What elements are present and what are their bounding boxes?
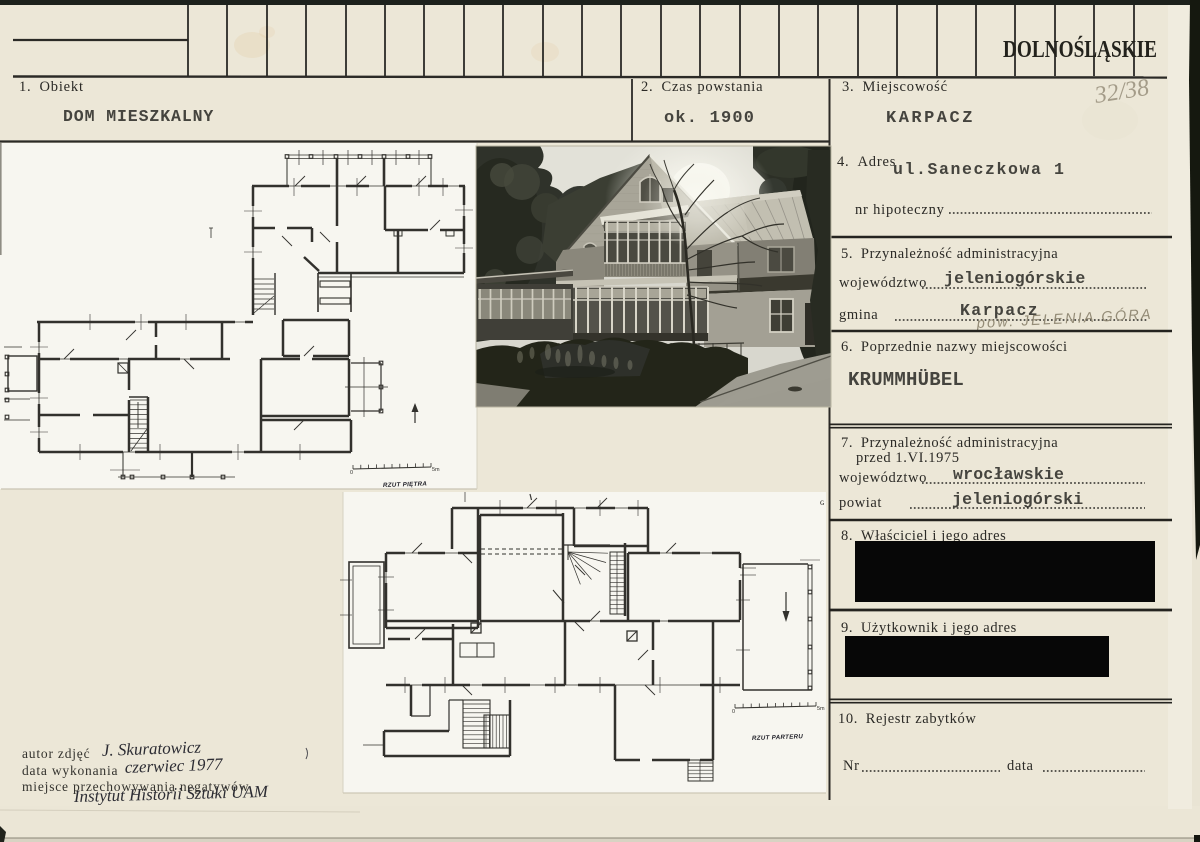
svg-text:DOLNOŚLĄSKIE: DOLNOŚLĄSKIE [1003,35,1157,63]
svg-text:data wykonania: data wykonania [22,763,118,778]
svg-text:wrocławskie: wrocławskie [953,465,1064,484]
svg-text:6. Poprzednie nazwy miejscowoś: 6. Poprzednie nazwy miejscowości [841,339,1068,355]
svg-text:jeleniogórskie: jeleniogórskie [944,269,1085,288]
svg-text:2. Czas powstania: 2. Czas powstania [641,79,763,95]
svg-text:gmina: gmina [839,307,878,323]
svg-text:data: data [1007,758,1034,774]
svg-text:DOM MIESZKALNY: DOM MIESZKALNY [63,107,214,126]
svg-text:województwo: województwo [839,275,927,291]
svg-text:województwo: województwo [839,470,927,486]
svg-text:5m: 5m [817,706,825,712]
svg-text:nr hipoteczny: nr hipoteczny [855,202,945,218]
svg-text:5. Przynależność administracyj: 5. Przynależność administracyjna [841,246,1058,262]
svg-text:autor zdjęć: autor zdjęć [22,746,90,761]
svg-text:powiat: powiat [839,495,882,511]
svg-text:KARPACZ: KARPACZ [886,109,975,128]
svg-text:ok. 1900: ok. 1900 [664,109,755,128]
svg-text:5m: 5m [432,467,440,473]
svg-text:1. Obiekt: 1. Obiekt [19,79,84,95]
svg-text:czerwiec 1977: czerwiec 1977 [124,754,224,776]
svg-text:9. Użytkownik i jego adres: 9. Użytkownik i jego adres [841,620,1017,636]
svg-text:ul.Saneczkowa 1: ul.Saneczkowa 1 [893,160,1066,179]
svg-text:0: 0 [350,470,353,476]
svg-text:Nr: Nr [843,758,860,774]
svg-text:10. Rejestr zabytków: 10. Rejestr zabytków [838,711,976,727]
svg-text:KRUMMHÜBEL: KRUMMHÜBEL [848,369,964,391]
svg-text:0: 0 [732,709,735,715]
svg-text:3. Miejscowość: 3. Miejscowość [842,79,948,95]
svg-text:przed 1.VI.1975: przed 1.VI.1975 [856,450,960,466]
svg-text:jeleniogórski: jeleniogórski [952,490,1083,509]
svg-text:7. Przynależność administracyj: 7. Przynależność administracyjna [841,435,1058,451]
svg-text:4. Adres: 4. Adres [837,154,896,170]
